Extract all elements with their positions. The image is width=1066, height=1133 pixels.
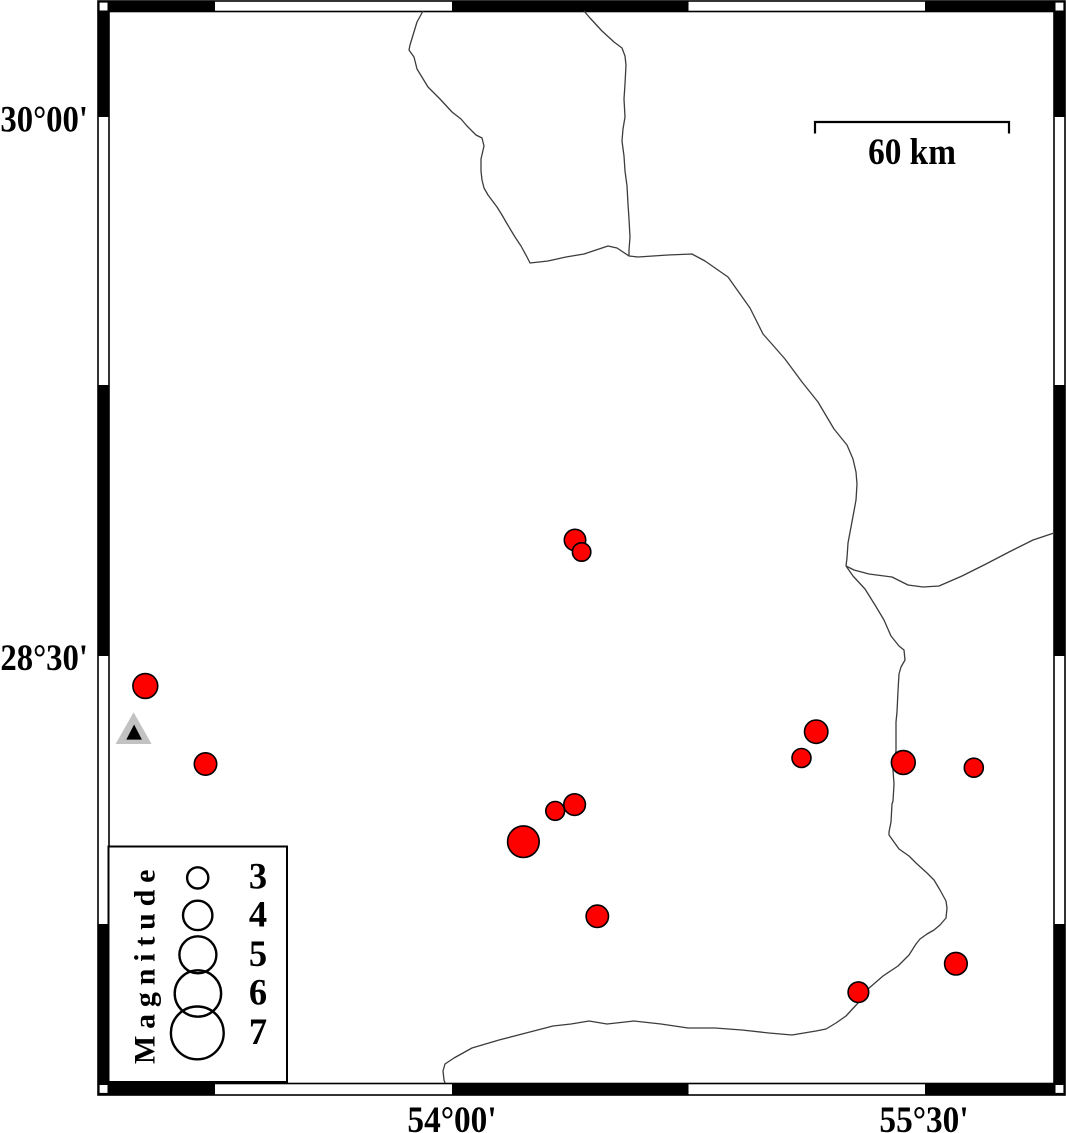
svg-text:7: 7 [249, 1011, 267, 1052]
svg-text:4: 4 [249, 894, 267, 935]
svg-text:55°30': 55°30' [879, 1099, 968, 1133]
svg-text:28°30': 28°30' [0, 637, 88, 678]
svg-text:60 km: 60 km [868, 131, 956, 172]
svg-text:Magnitude: Magnitude [129, 863, 162, 1064]
svg-text:6: 6 [249, 972, 267, 1013]
svg-text:3: 3 [249, 856, 267, 897]
svg-text:5: 5 [249, 933, 267, 974]
svg-text:54°00': 54°00' [407, 1099, 496, 1133]
svg-text:30°00': 30°00' [0, 99, 88, 140]
